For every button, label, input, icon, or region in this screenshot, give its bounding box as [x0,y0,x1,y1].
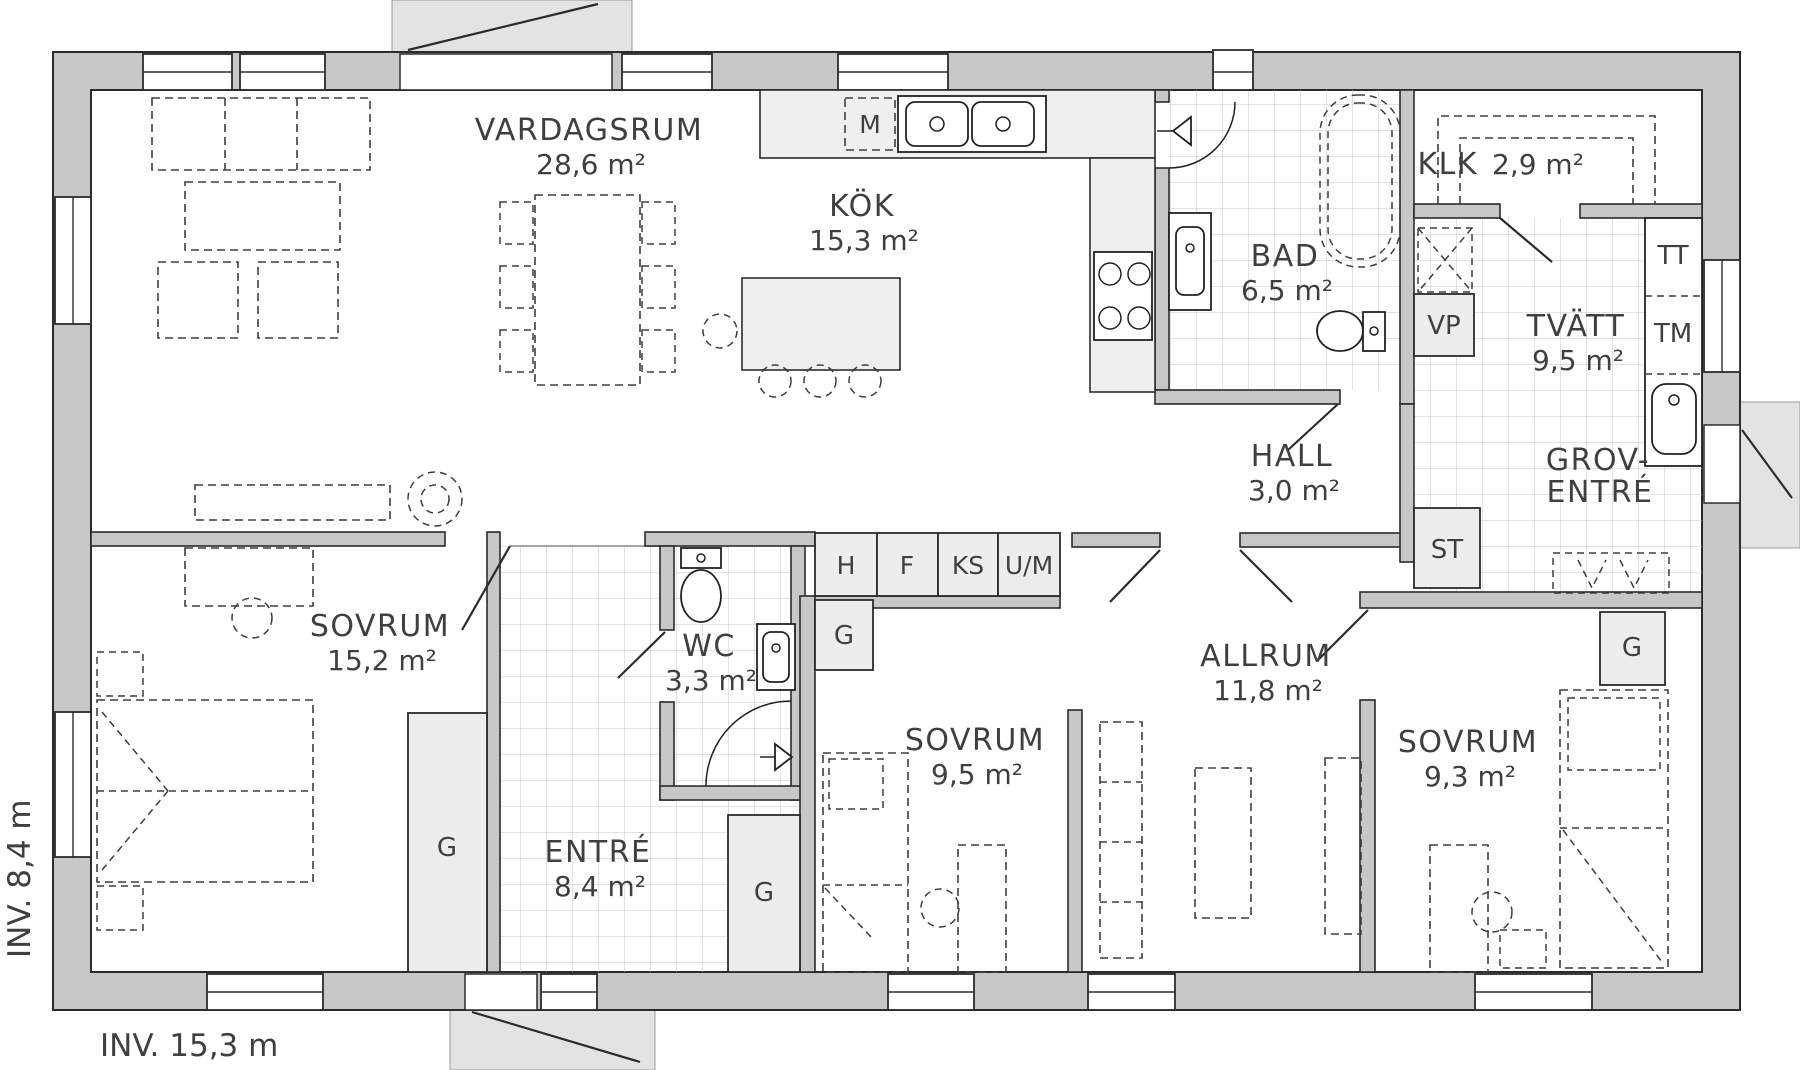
room-label-groventre-1: GROV- [1546,443,1650,478]
unit-um-label: U/M [1005,551,1053,580]
room-label-bad: BAD [1251,239,1320,274]
window [541,974,597,1010]
room-label-groventre-2: ENTRÉ [1546,474,1653,510]
entrance-door-opening [465,974,537,1010]
floor-plan-page: M [0,0,1800,1070]
dimension-height: INV. 8,4 m [2,799,38,958]
room-label-wc: WC [682,629,736,664]
double-sink-icon [898,96,1046,152]
porch-top [392,0,632,52]
room-label-klk: KLK [1417,147,1478,182]
washer-label: TM [1653,319,1692,349]
storage-closet-label: ST [1431,535,1464,565]
washbasin-icon [1169,213,1211,310]
room-area-sovrum3: 9,3 m² [1424,760,1516,793]
room-area-bad: 6,5 m² [1241,274,1333,307]
room-area-vardagsrum: 28,6 m² [536,148,646,181]
window [143,54,232,90]
window [622,54,712,90]
stove-icon [1094,252,1152,340]
unit-f-label: F [900,551,914,580]
kitchen-island [742,278,900,370]
room-label-sovrum1: SOVRUM [310,609,450,644]
room-area-allrum: 11,8 m² [1213,674,1323,707]
room-label-tvatt: TVÄTT [1526,308,1626,344]
room-label-allrum: ALLRUM [1200,639,1332,674]
patio-door-opening [400,54,612,90]
unit-h-label: H [837,551,856,580]
room-label-sovrum2: SOVRUM [905,723,1045,758]
dryer-label: TT [1656,241,1688,271]
heat-pump-label: VP [1427,311,1460,341]
tall-units-row: H F KS U/M [815,533,1060,596]
window [207,974,323,1010]
window [1475,974,1592,1010]
wardrobe-label: G [834,621,854,651]
room-area-kok: 15,3 m² [809,224,919,257]
room-label-sovrum3: SOVRUM [1398,725,1538,760]
window [1213,50,1253,90]
window [240,54,325,90]
window [55,197,91,324]
room-label-hall: HALL [1251,439,1334,474]
toilet-icon [681,548,721,622]
wardrobe-label: G [1622,633,1642,663]
room-area-hall: 3,0 m² [1248,474,1340,507]
room-area-tvatt: 9,5 m² [1532,344,1624,377]
wardrobe-label: G [437,833,457,863]
dishwasher-label: M [859,110,881,139]
toilet-icon [1317,311,1385,351]
wardrobe-label: G [754,878,774,908]
bedroom1-furniture [97,548,313,930]
window [888,974,974,1010]
room-area-sovrum1: 15,2 m² [327,644,437,677]
dimension-width: INV. 15,3 m [100,1028,278,1064]
window [55,712,91,857]
side-door-opening [1704,425,1740,503]
window [838,54,948,90]
room-area-wc: 3,3 m² [665,664,757,697]
room-area-klk: 2,9 m² [1492,148,1584,181]
floor-plan: M [0,0,1800,1070]
room-area-entre: 8,4 m² [554,870,646,903]
porch-bottom [450,1010,655,1070]
window [1704,260,1740,372]
room-label-vardagsrum: VARDAGSRUM [475,113,704,148]
room-label-kok: KÖK [829,188,895,224]
room-area-sovrum2: 9,5 m² [931,758,1023,791]
unit-ks-label: KS [952,551,984,580]
kitchen-fixtures: M [703,90,1155,397]
window [1088,974,1175,1010]
allrum-furniture [1100,722,1361,958]
washbasin-icon [757,624,795,690]
porch-right [1740,402,1800,548]
room-label-entre: ENTRÉ [544,834,651,870]
